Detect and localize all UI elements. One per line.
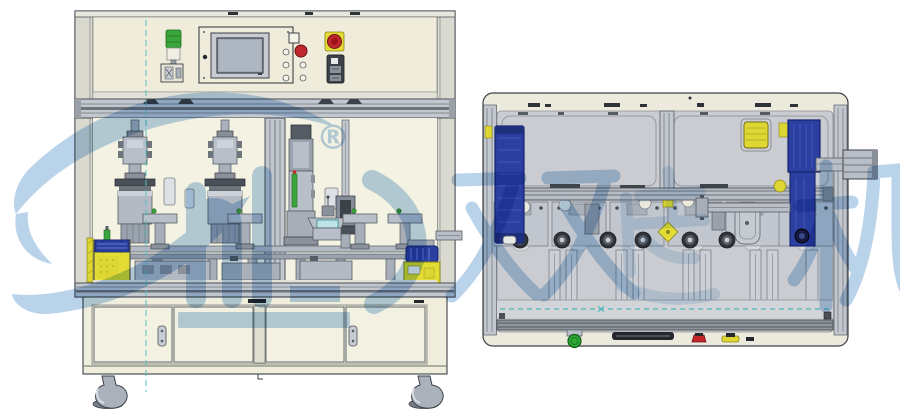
base-cabinet xyxy=(83,297,447,379)
yellow-pad-unit xyxy=(741,119,771,151)
cad-drawing-canvas: ® xyxy=(0,0,900,410)
cabinet-door-4 xyxy=(346,307,425,362)
leveling-foot-right xyxy=(409,376,443,409)
bearing-ring-6 xyxy=(719,232,735,248)
green-button xyxy=(568,335,581,348)
bearing-ring-5 xyxy=(682,232,698,248)
bearing-ring-3 xyxy=(600,232,616,248)
registered-trademark-symbol: ® xyxy=(316,118,350,158)
emergency-stop-button xyxy=(325,32,344,51)
red-button xyxy=(692,335,706,342)
hmi-screen xyxy=(211,33,269,78)
control-panel xyxy=(93,17,437,92)
start-button xyxy=(295,45,307,57)
bearing-ring-2 xyxy=(554,232,570,248)
connector-block xyxy=(327,55,344,83)
machine-drawing: ® xyxy=(0,0,900,410)
door-handle-2 xyxy=(349,326,357,346)
leveling-foot-left xyxy=(93,376,127,409)
guide-plate-1 xyxy=(164,178,175,205)
hmi-panel xyxy=(199,27,293,83)
door-handle-1 xyxy=(158,326,166,346)
